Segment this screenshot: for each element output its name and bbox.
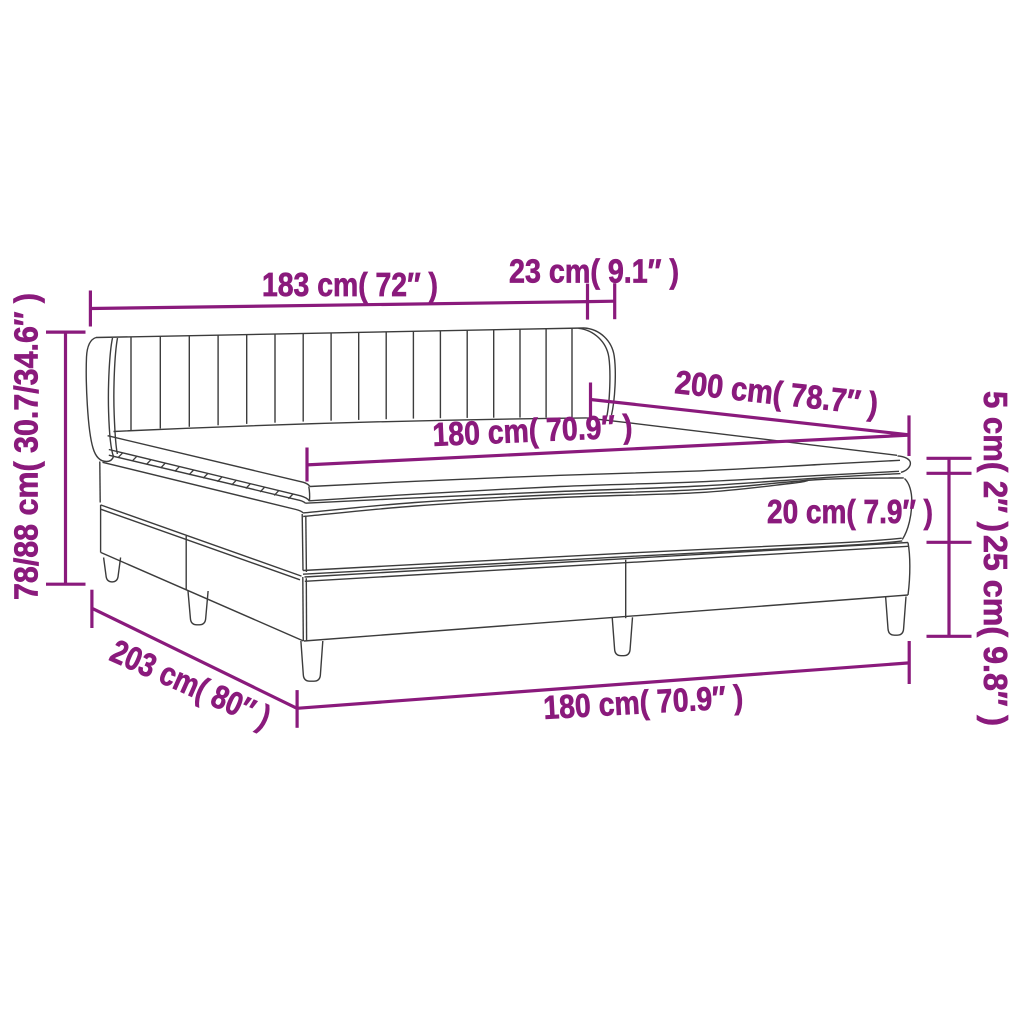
svg-text:20 cm( 7.9″ ): 20 cm( 7.9″ ) [767,493,933,530]
svg-text:25 cm( 9.8″ ): 25 cm( 9.8″ ) [977,535,1014,726]
svg-text:183 cm( 72″ ): 183 cm( 72″ ) [262,266,438,303]
svg-text:23 cm( 9.1″ ): 23 cm( 9.1″ ) [509,253,679,290]
svg-text:78/88 cm( 30.7/34.6″ ): 78/88 cm( 30.7/34.6″ ) [8,293,45,600]
svg-text:5 cm( 2″ ): 5 cm( 2″ ) [977,391,1014,532]
